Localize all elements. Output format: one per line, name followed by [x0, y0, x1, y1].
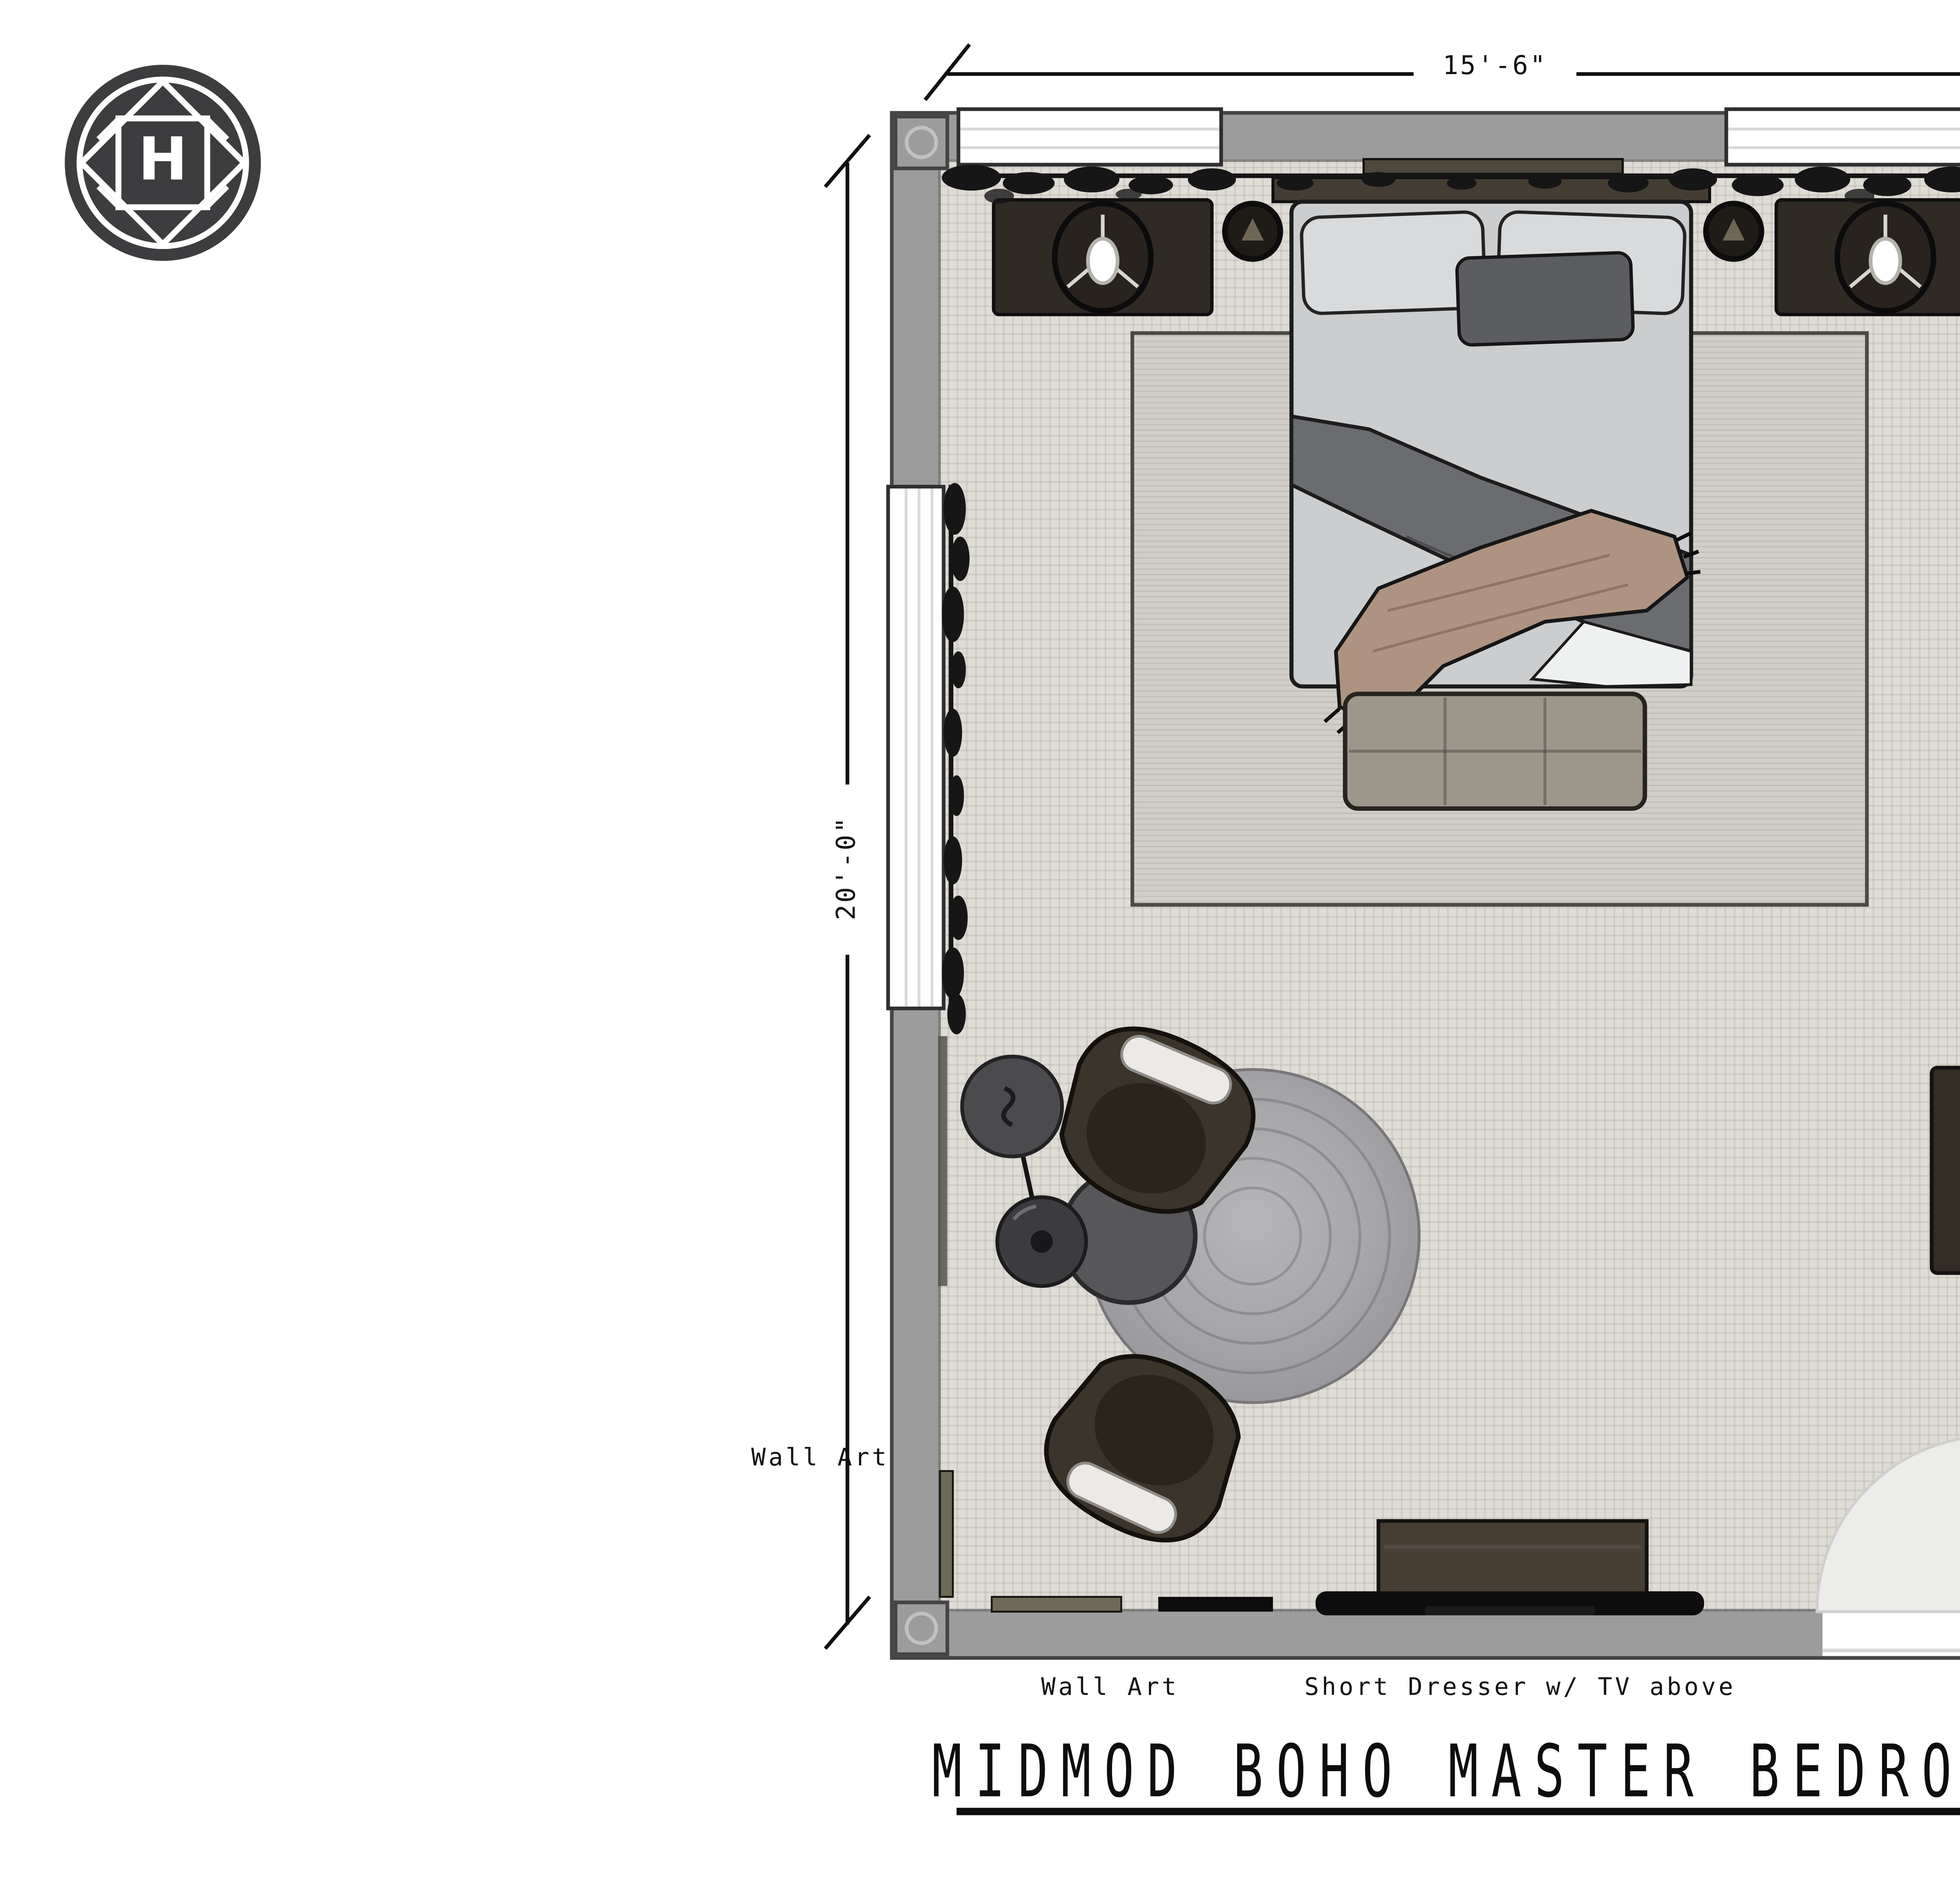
- curtains-left: [942, 483, 969, 1035]
- arc-floor-lamp: [962, 1056, 1086, 1286]
- sconce-right-icon: [1706, 203, 1762, 259]
- table-lamp-icon: [1054, 203, 1151, 311]
- bench: [1345, 694, 1645, 809]
- wall-art-strip-left-upper: [938, 1036, 947, 1286]
- label-short-dresser: Short Dresser w/ TV above: [1305, 1675, 1721, 1703]
- short-dresser: [1378, 1521, 1646, 1603]
- label-wall-art-bottom: Wall Art: [1027, 1675, 1194, 1703]
- label-wall-art-left: Wall Art: [751, 1445, 889, 1473]
- logo-letter: H: [61, 124, 265, 194]
- floor-plan-canvas: H 15'-6" 20'-0": [0, 0, 1960, 1876]
- sconce-left-icon: [1225, 203, 1281, 259]
- table-lamp-icon: [1837, 203, 1933, 311]
- door-swing-arc: [1817, 1436, 1960, 1612]
- page-title: MIDMOD BOHO MASTER BEDROOM: [884, 1732, 1960, 1815]
- nightstand-left: [994, 200, 1212, 315]
- bed: [1273, 159, 1710, 742]
- dimension-width-label: 15'-6": [1406, 52, 1584, 82]
- entry-door: [1817, 1430, 1960, 1617]
- wall-art-strip-bottom-black: [1158, 1597, 1273, 1612]
- wall-shelf: [1364, 159, 1623, 174]
- accent-pillow: [1457, 252, 1633, 345]
- zoom-scaler: H 15'-6" 20'-0": [0, 0, 1960, 1876]
- title-underline: [956, 1808, 1960, 1814]
- tall-dresser: [1932, 1067, 1960, 1273]
- lamp-base: [962, 1056, 1062, 1156]
- nightstand-right: [1776, 200, 1960, 315]
- wall-art-strip-bottom-olive: [992, 1597, 1121, 1612]
- wall-art-strip-left: [940, 1471, 953, 1597]
- dimension-height-label: 20'-0": [833, 794, 862, 942]
- tv: [1316, 1591, 1704, 1615]
- brand-logo: H: [61, 61, 265, 265]
